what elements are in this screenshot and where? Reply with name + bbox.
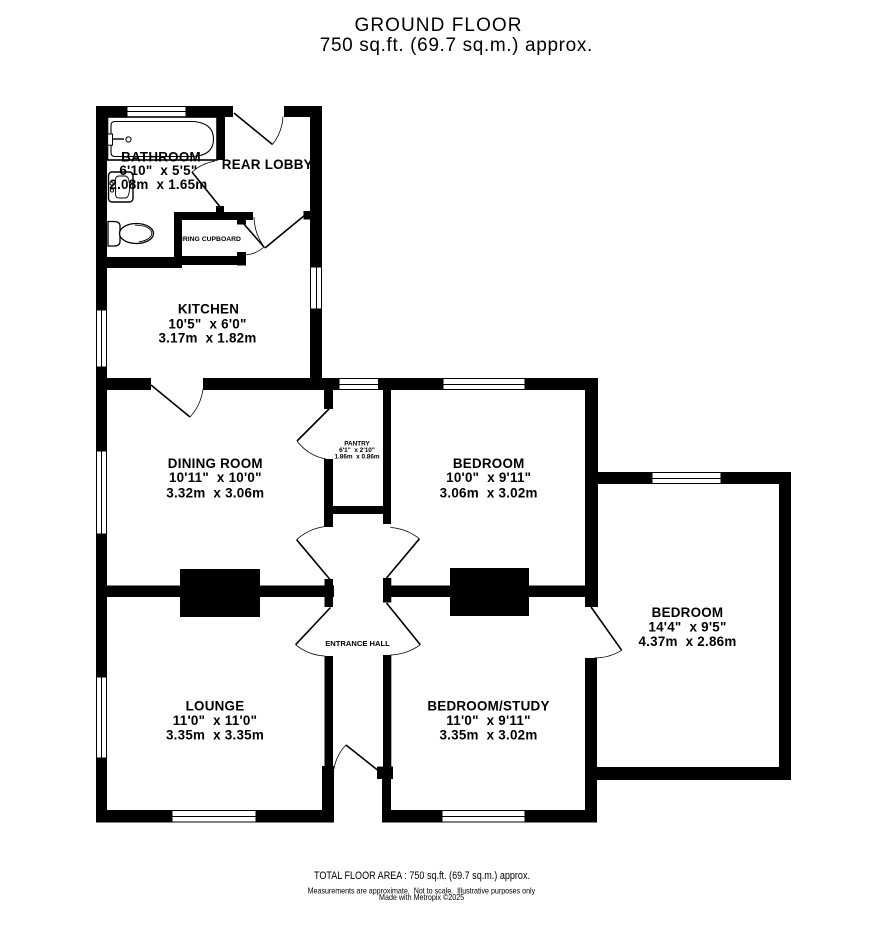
svg-text:BEDROOM: BEDROOM	[453, 456, 525, 471]
svg-text:11'0" x 9'11": 11'0" x 9'11"	[446, 713, 530, 728]
svg-text:1.86m x 0.86m: 1.86m x 0.86m	[334, 454, 379, 461]
svg-text:AIRING CUPBOARD: AIRING CUPBOARD	[176, 236, 241, 243]
svg-text:TOTAL FLOOR AREA : 750 sq.ft.: TOTAL FLOOR AREA : 750 sq.ft. (69.7 sq.m…	[314, 870, 530, 882]
svg-text:3.32m x 3.06m: 3.32m x 3.06m	[166, 486, 264, 501]
svg-text:2.08m x 1.65m: 2.08m x 1.65m	[109, 177, 207, 192]
svg-text:14'4" x 9'5": 14'4" x 9'5"	[648, 620, 726, 635]
svg-text:11'0" x 11'0": 11'0" x 11'0"	[173, 713, 257, 728]
svg-text:ENTRANCE HALL: ENTRANCE HALL	[325, 639, 390, 648]
svg-text:BEDROOM/STUDY: BEDROOM/STUDY	[427, 699, 549, 714]
svg-text:Made with Metropix ©2025: Made with Metropix ©2025	[379, 893, 465, 902]
svg-text:KITCHEN: KITCHEN	[178, 302, 239, 317]
svg-text:DINING ROOM: DINING ROOM	[168, 456, 263, 471]
svg-text:GROUND FLOOR: GROUND FLOOR	[355, 15, 522, 36]
svg-text:6'10" x 5'5": 6'10" x 5'5"	[119, 163, 197, 178]
svg-text:4.37m x 2.86m: 4.37m x 2.86m	[638, 634, 736, 649]
svg-text:LOUNGE: LOUNGE	[186, 699, 245, 714]
svg-text:3.17m x 1.82m: 3.17m x 1.82m	[158, 331, 256, 346]
svg-text:10'0" x 9'11": 10'0" x 9'11"	[446, 470, 531, 485]
svg-text:3.06m x 3.02m: 3.06m x 3.02m	[440, 486, 538, 501]
svg-text:10'5" x 6'0": 10'5" x 6'0"	[168, 317, 246, 332]
svg-text:10'11" x 10'0": 10'11" x 10'0"	[169, 470, 262, 485]
svg-text:3.35m x 3.02m: 3.35m x 3.02m	[439, 728, 537, 743]
svg-text:750 sq.ft. (69.7 sq.m.) approx: 750 sq.ft. (69.7 sq.m.) approx.	[320, 35, 593, 56]
svg-text:REAR LOBBY: REAR LOBBY	[222, 157, 313, 172]
svg-text:3.35m x 3.35m: 3.35m x 3.35m	[166, 728, 264, 743]
svg-text:BEDROOM: BEDROOM	[652, 605, 724, 620]
